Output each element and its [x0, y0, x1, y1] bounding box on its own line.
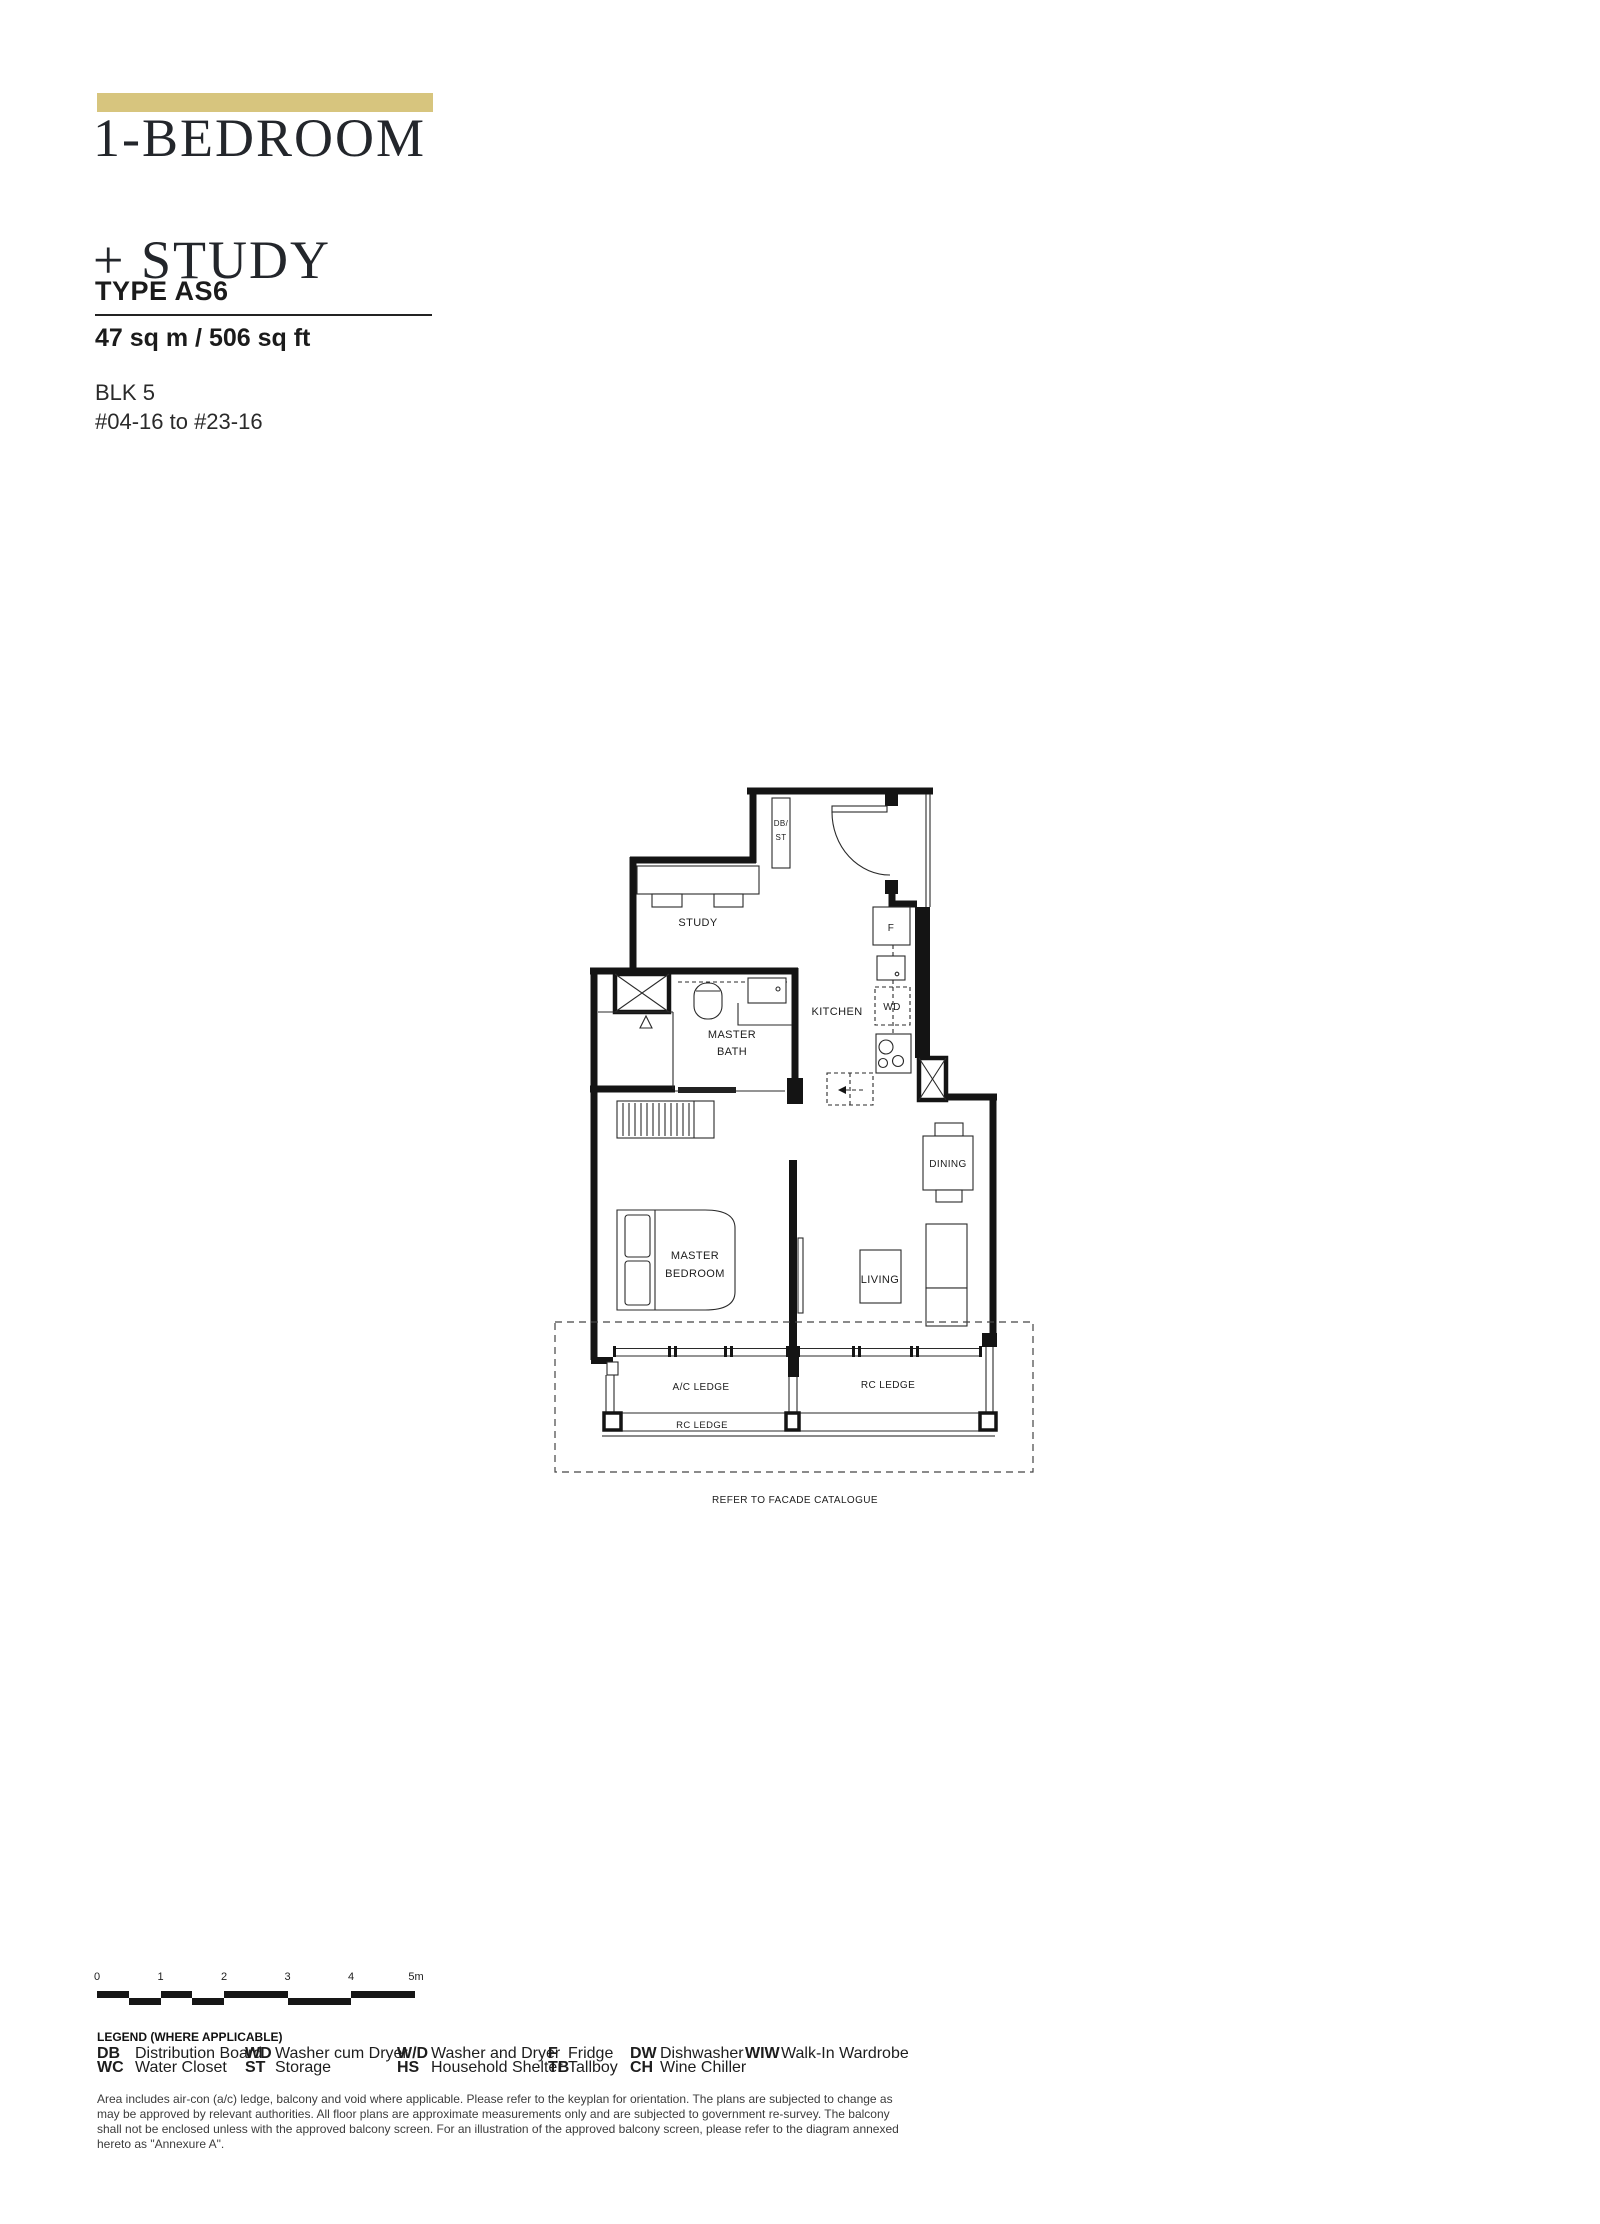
- room-label-study: STUDY: [678, 917, 718, 929]
- facade-note: REFER TO FACADE CATALOGUE: [712, 1495, 878, 1506]
- page-title: 1-BEDROOM + STUDY: [93, 108, 426, 291]
- scale-bar: 0 1 2 3 4 5m: [97, 1971, 417, 2007]
- unit-range: #04-16 to #23-16: [95, 409, 263, 435]
- room-label-db: DB/: [774, 819, 789, 828]
- legend-col-6: WIWWalk-In Wardrobe: [745, 2047, 909, 2061]
- legend-abbr: ST: [245, 2061, 275, 2075]
- study-desk: [637, 866, 759, 907]
- legend-col-3: W/DWasher and Dryer HSHousehold Shelter: [397, 2047, 563, 2075]
- legend-desc: Tallboy: [568, 2061, 618, 2075]
- legend-col-2: WDWasher cum Dryer STStorage: [245, 2047, 408, 2075]
- bath-fixtures: [694, 978, 786, 1019]
- legend-col-4: FFridge TBTallboy: [548, 2047, 618, 2075]
- legend-abbr: HS: [397, 2061, 431, 2075]
- room-label-living: LIVING: [861, 1274, 899, 1286]
- room-label-dining: DINING: [929, 1159, 966, 1170]
- entrance-door: [832, 806, 890, 875]
- sofa: [926, 1224, 967, 1326]
- unit-type-label: TYPE AS6: [95, 276, 229, 307]
- unit-area: 47 sq m / 506 sq ft: [95, 324, 310, 353]
- scale-tick-5: 5m: [408, 1971, 423, 1983]
- scale-tick-4: 4: [348, 1971, 354, 1983]
- scale-tick-0: 0: [94, 1971, 100, 1983]
- page-title-line1: 1-BEDROOM: [93, 108, 426, 168]
- wardrobe: [617, 1101, 714, 1138]
- ac-ledge-label: A/C LEDGE: [673, 1382, 730, 1393]
- scale-tick-3: 3: [284, 1971, 290, 1983]
- floorplan-page: 1-BEDROOM + STUDY TYPE AS6 47 sq m / 506…: [0, 0, 1600, 2224]
- rc-ledge-bottom-label: RC LEDGE: [676, 1420, 728, 1431]
- legend-desc: Storage: [275, 2061, 331, 2075]
- legend-title: LEGEND (WHERE APPLICABLE): [97, 2030, 283, 2044]
- legend-desc: Wine Chiller: [660, 2061, 746, 2075]
- wd-label: WD: [883, 1002, 900, 1013]
- fridge-label: F: [888, 923, 895, 934]
- room-label-masterbedroom-2: BEDROOM: [665, 1268, 725, 1280]
- rc-ledge-right-label: RC LEDGE: [861, 1380, 915, 1391]
- legend-abbr: WC: [97, 2061, 135, 2075]
- room-label-st: ST: [775, 833, 786, 842]
- scale-tick-1: 1: [157, 1971, 163, 1983]
- legend-abbr: TB: [548, 2061, 568, 2075]
- legend-col-1: DBDistribution Board WCWater Closet: [97, 2047, 262, 2075]
- legend-abbr: CH: [630, 2061, 660, 2075]
- block-number: BLK 5: [95, 380, 155, 406]
- floor-plan: STUDY DB/ ST F WD KITCHEN MASTER BATH MA…: [545, 760, 1045, 1540]
- room-label-masterbath-1: MASTER: [708, 1029, 756, 1041]
- window-bands: [613, 1346, 982, 1357]
- legend-desc: Household Shelter: [431, 2061, 563, 2075]
- type-underline: [95, 314, 432, 316]
- legend-desc: Walk-In Wardrobe: [781, 2047, 909, 2061]
- room-label-masterbath-2: BATH: [717, 1046, 747, 1058]
- scale-tick-2: 2: [221, 1971, 227, 1983]
- legend-col-5: DWDishwasher CHWine Chiller: [630, 2047, 746, 2075]
- floor-plan-svg: STUDY DB/ ST F WD KITCHEN MASTER BATH MA…: [545, 760, 1045, 1540]
- disclaimer-text: Area includes air-con (a/c) ledge, balco…: [97, 2092, 911, 2152]
- room-label-kitchen: KITCHEN: [811, 1006, 862, 1018]
- legend-abbr: WIW: [745, 2047, 781, 2061]
- room-label-masterbedroom-1: MASTER: [671, 1250, 719, 1262]
- legend-desc: Water Closet: [135, 2061, 227, 2075]
